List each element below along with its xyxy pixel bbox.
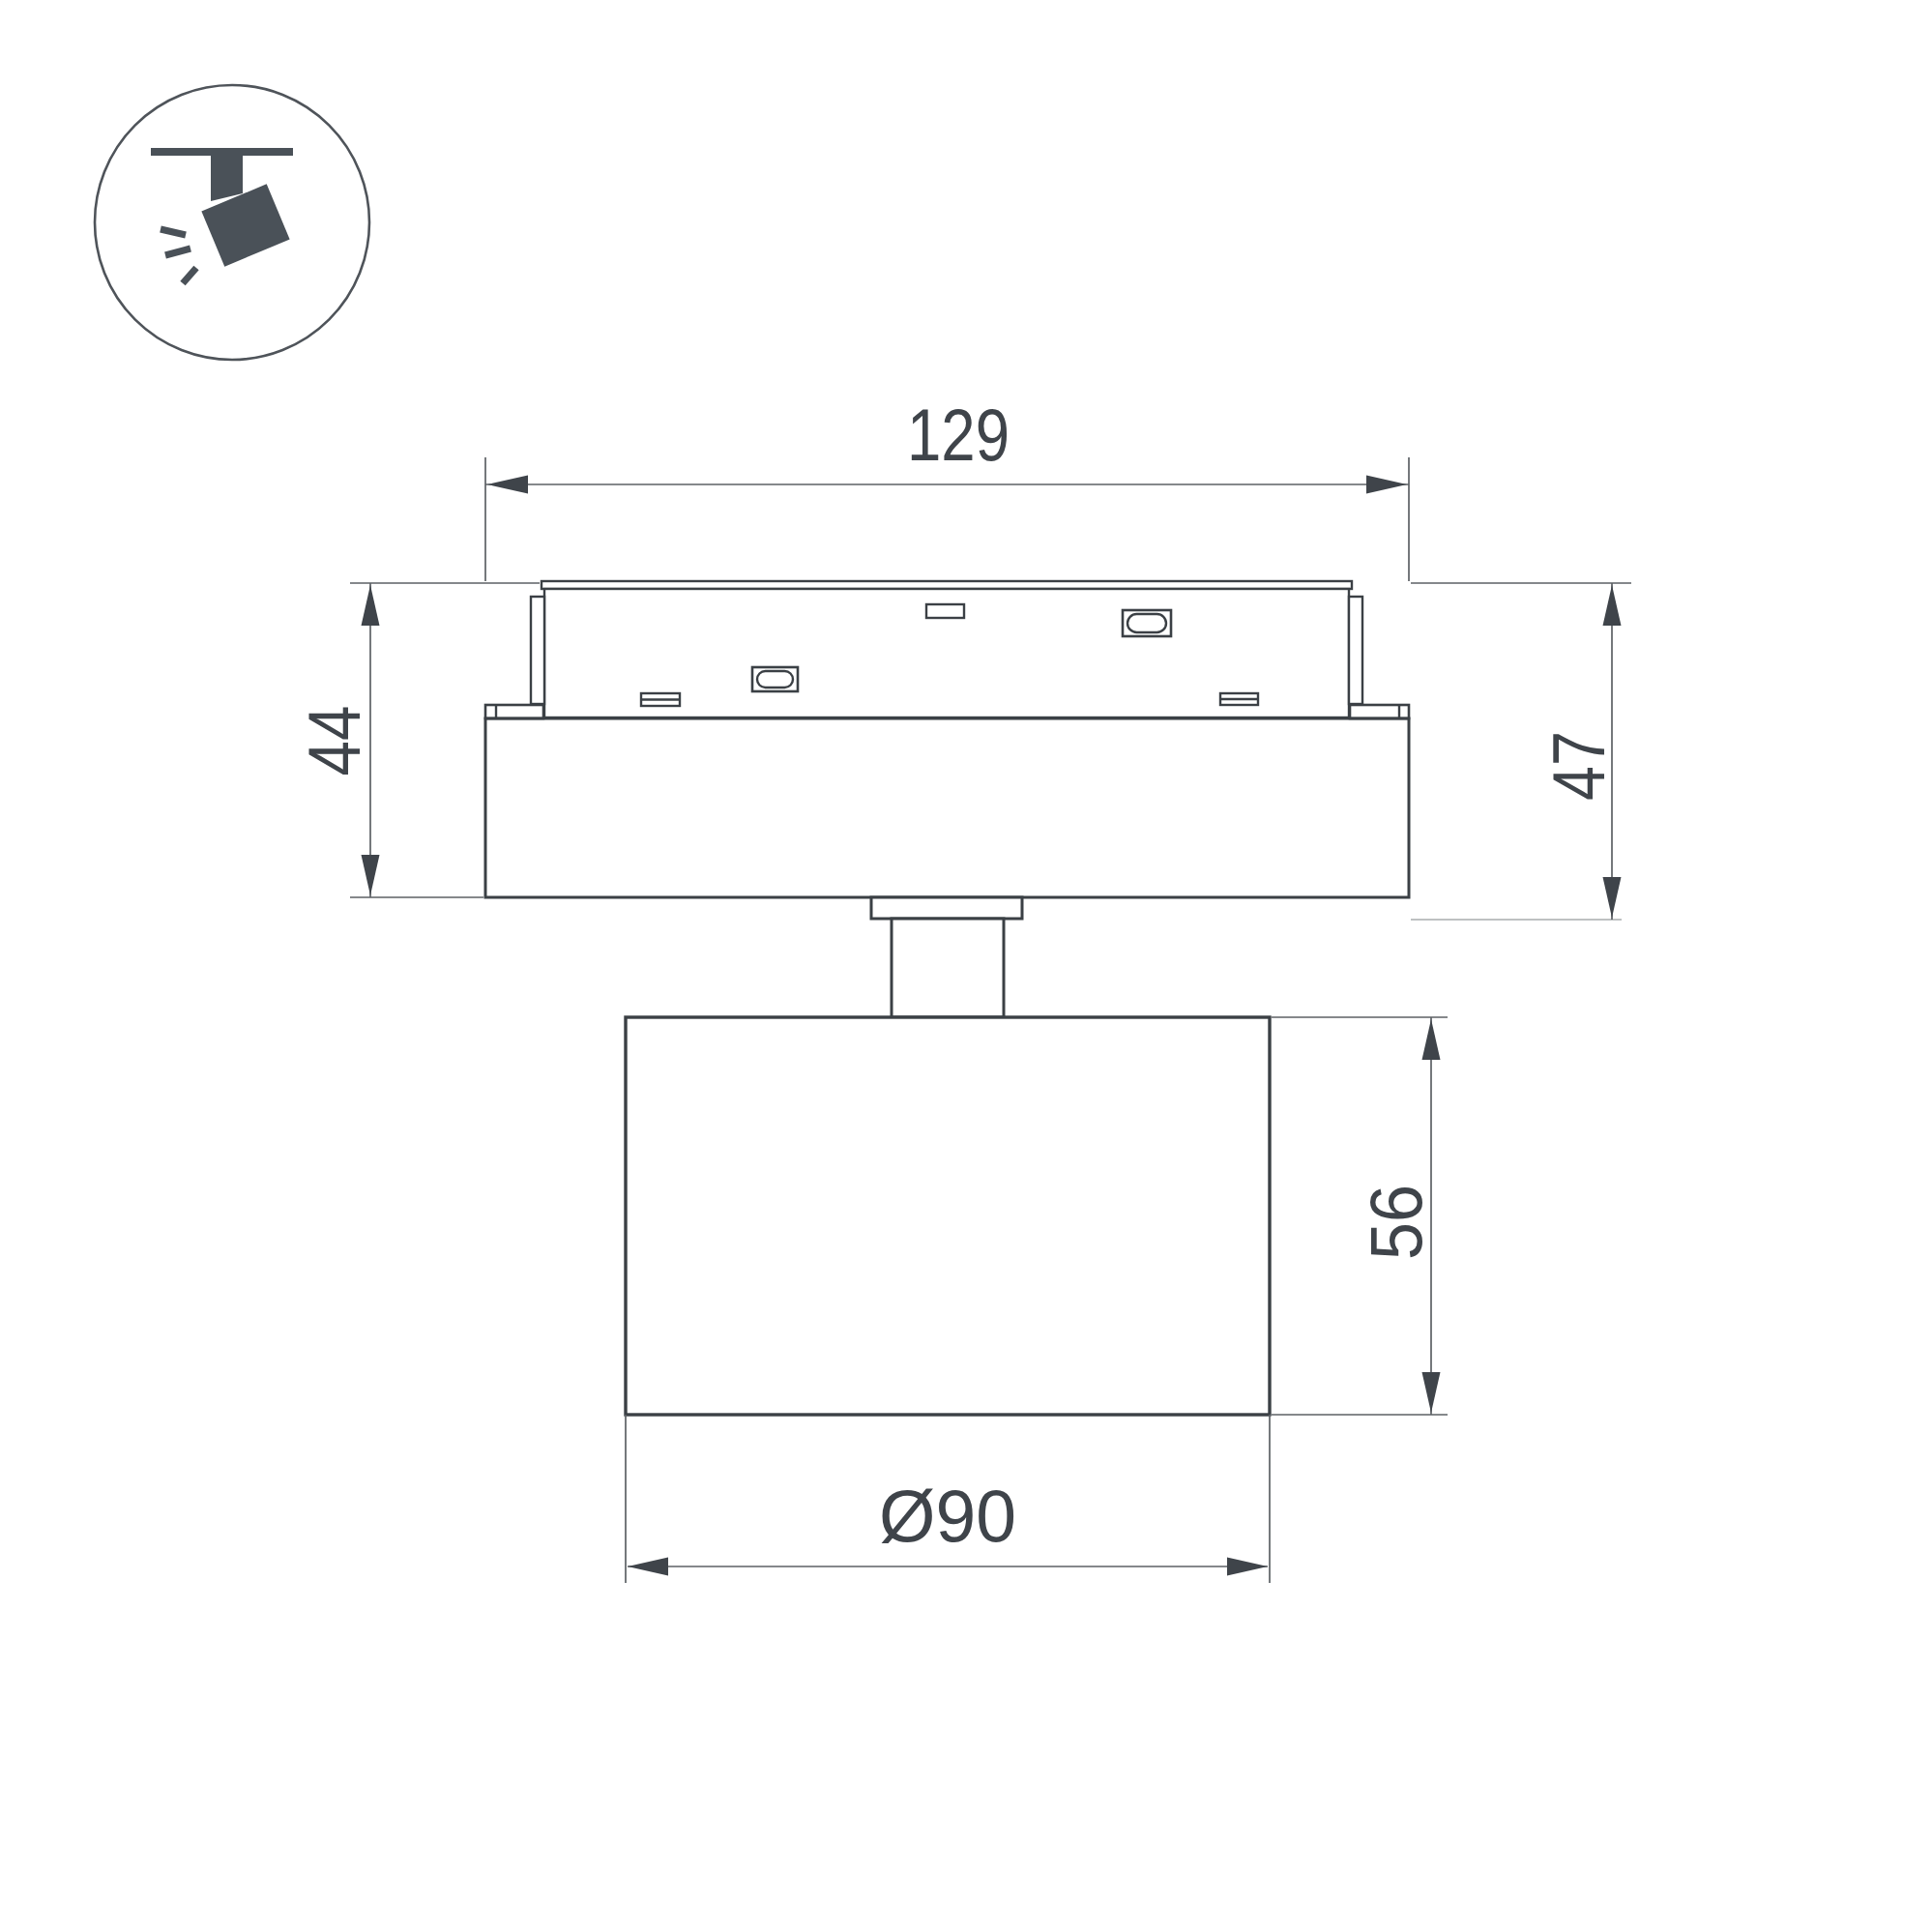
dim-right-height: 47 xyxy=(1411,583,1631,920)
dim-track-width-label: 129 xyxy=(907,394,1010,476)
housing-lip-left xyxy=(485,705,543,718)
arrow-left xyxy=(628,1558,668,1576)
adapter-tab-left xyxy=(531,597,544,704)
housing-lip-right xyxy=(1350,705,1409,718)
track-adapter xyxy=(531,581,1362,717)
icon-fixture-stem xyxy=(211,155,243,201)
housing-body xyxy=(485,718,1409,897)
pivot-joint xyxy=(871,897,1022,1017)
drawing-page: 129 44 47 56 Ø90 xyxy=(0,0,1932,1932)
dim-head-height-label: 56 xyxy=(1355,1185,1437,1260)
arrow-left xyxy=(487,476,528,494)
dimension-drawing: 129 44 47 56 Ø90 xyxy=(0,0,1932,1932)
arrow-up xyxy=(1603,585,1622,626)
ceiling-track-spotlight-icon xyxy=(95,85,369,360)
dim-head-height: 56 xyxy=(1272,1017,1448,1415)
adapter-tab-right xyxy=(1349,597,1362,704)
icon-track-bar xyxy=(151,148,293,156)
dim-track-width: 129 xyxy=(485,394,1409,581)
dim-head-diameter-label: Ø90 xyxy=(879,1475,1016,1557)
arrow-right xyxy=(1366,476,1407,494)
base-housing xyxy=(485,705,1409,897)
arrow-down xyxy=(362,855,380,895)
arrow-right xyxy=(1227,1558,1268,1576)
arrow-up xyxy=(1422,1019,1441,1060)
pivot-collar xyxy=(871,897,1022,919)
dim-head-diameter: Ø90 xyxy=(626,1415,1270,1583)
adapter-top-plate xyxy=(542,581,1352,589)
arrow-down xyxy=(1422,1372,1441,1413)
lamp-head xyxy=(626,1017,1270,1415)
arrow-down xyxy=(1603,877,1622,918)
pivot-stem xyxy=(892,919,1004,1017)
dim-left-height-label: 44 xyxy=(293,706,375,776)
dim-right-height-label: 47 xyxy=(1537,731,1620,801)
arrow-up xyxy=(362,585,380,626)
